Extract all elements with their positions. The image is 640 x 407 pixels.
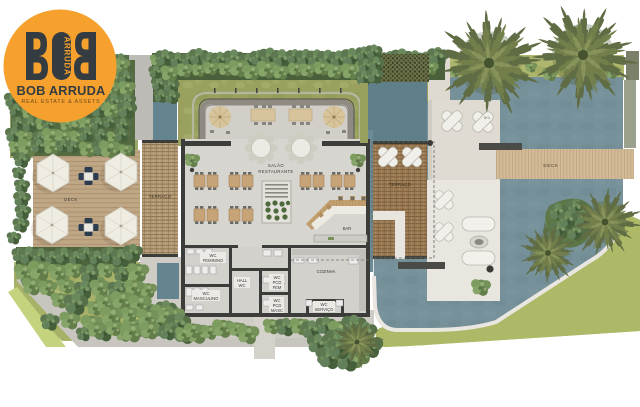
svg-text:DECK: DECK: [543, 163, 558, 168]
svg-text:REAL ESTATE & ASSETS: REAL ESTATE & ASSETS: [21, 99, 100, 105]
svg-text:FEMININO: FEMININO: [203, 258, 224, 263]
svg-text:MASC: MASC: [271, 308, 283, 313]
svg-text:SERVIÇO: SERVIÇO: [315, 307, 335, 312]
svg-text:COZINHA: COZINHA: [317, 269, 336, 274]
svg-text:WC: WC: [239, 283, 246, 288]
svg-text:BOB ARRUDA: BOB ARRUDA: [17, 83, 106, 98]
svg-text:TERRAÇO: TERRAÇO: [149, 194, 172, 199]
svg-text:MASCULINO: MASCULINO: [194, 296, 220, 301]
svg-text:SALÃO: SALÃO: [268, 163, 284, 168]
svg-text:TERRAÇO: TERRAÇO: [389, 182, 412, 187]
svg-text:FEM: FEM: [273, 285, 282, 290]
svg-text:5+1: 5+1: [484, 116, 490, 120]
svg-text:ARRUDA: ARRUDA: [63, 37, 72, 76]
svg-text:DECK: DECK: [64, 197, 78, 202]
svg-text:RESTAURANTE: RESTAURANTE: [258, 169, 293, 174]
svg-text:BAR: BAR: [343, 226, 352, 231]
